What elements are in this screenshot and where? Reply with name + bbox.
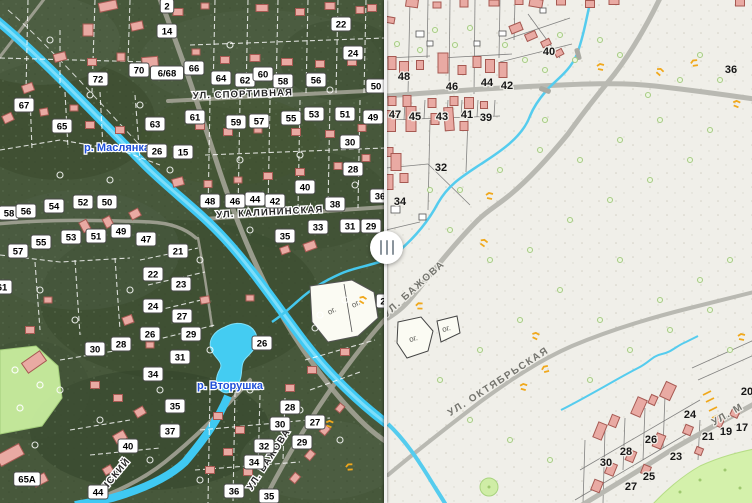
house-number-bubble: 22 xyxy=(143,267,163,281)
shed xyxy=(419,214,426,220)
building xyxy=(609,0,619,5)
shed xyxy=(540,8,546,13)
building xyxy=(200,296,210,304)
house-number-bubble: 32 xyxy=(254,439,274,453)
tree-icon xyxy=(573,58,578,63)
shed xyxy=(416,31,424,37)
building xyxy=(428,99,436,108)
building xyxy=(250,55,260,62)
house-number-bubble: 52 xyxy=(73,195,93,209)
building xyxy=(438,53,448,73)
tree-icon xyxy=(433,28,438,33)
house-number-bubble: 23 xyxy=(171,277,191,291)
building xyxy=(400,174,408,183)
house-number-bubble: 61 xyxy=(185,110,205,124)
house-number: 32 xyxy=(259,442,270,453)
building xyxy=(26,327,35,334)
house-number-bubble: 46 xyxy=(225,194,245,208)
tree-icon xyxy=(428,188,433,193)
house-number-bubble: 65 xyxy=(52,119,72,133)
building xyxy=(489,0,499,6)
tree-icon xyxy=(528,248,533,253)
house-number-bubble: 44 xyxy=(245,192,265,206)
house-number: 22 xyxy=(148,270,159,281)
building xyxy=(221,57,230,64)
house-number-bubble: 37 xyxy=(160,424,180,438)
house-number-bubble: 40 xyxy=(118,439,138,453)
tree-icon xyxy=(658,298,663,303)
house-number: 44 xyxy=(481,77,494,89)
building xyxy=(214,413,223,420)
building xyxy=(292,129,301,136)
house-number: 28 xyxy=(348,165,359,176)
building xyxy=(586,1,595,8)
shed xyxy=(427,41,433,46)
house-number: 54 xyxy=(49,202,60,213)
building xyxy=(515,0,523,5)
house-number: 67 xyxy=(19,101,30,112)
house-number: 60 xyxy=(258,70,269,81)
house-number-bubble: 35 xyxy=(259,489,279,503)
house-number: 58 xyxy=(278,77,289,88)
building xyxy=(736,0,745,6)
building xyxy=(264,173,273,180)
tree-icon xyxy=(648,178,653,183)
house-number-bubble: 35 xyxy=(275,229,295,243)
building xyxy=(88,59,97,66)
house-number-bubble: 34 xyxy=(143,367,163,381)
house-number-bubble: 56 xyxy=(16,204,36,218)
house-number: 70 xyxy=(134,66,145,77)
tree-icon xyxy=(453,43,458,48)
building xyxy=(433,2,441,8)
house-number: 36 xyxy=(725,64,737,76)
park-dot xyxy=(488,486,491,489)
building xyxy=(557,0,566,5)
house-number: 50 xyxy=(102,198,113,209)
building xyxy=(460,122,468,131)
park-dot xyxy=(724,469,727,472)
house-number: 46 xyxy=(446,81,458,93)
house-number-bubble: 56 xyxy=(306,73,326,87)
house-number-bubble: 28 xyxy=(280,400,300,414)
vector-map-panel[interactable]: УЛ. БАЖОВАУЛ. ОКТЯБРЬСКАЯУЛ. Мог.ог.4846… xyxy=(381,0,752,503)
house-number: 40 xyxy=(300,183,311,194)
tree-icon xyxy=(618,138,623,143)
tree-icon xyxy=(708,308,713,313)
building xyxy=(325,3,335,10)
basemap-texture xyxy=(385,0,752,503)
house-number: 61 xyxy=(0,283,8,294)
house-number-bubble: 29 xyxy=(292,435,312,449)
house-number: 28 xyxy=(116,340,127,351)
satellite-map-panel[interactable]: УЛ. СПОРТИВНАЯУЛ. КАЛИНИНСКАЯУЛ. БАЖОВАН… xyxy=(0,0,400,503)
house-number: 27 xyxy=(310,418,321,429)
building xyxy=(465,98,474,109)
house-number-bubble: 40 xyxy=(295,180,315,194)
house-number-bubble: 50 xyxy=(366,79,386,93)
house-number-bubble: 31 xyxy=(170,350,190,364)
house-number: 37 xyxy=(165,427,176,438)
building xyxy=(460,0,468,7)
building xyxy=(450,97,458,106)
house-number-bubble: 59 xyxy=(226,115,246,129)
house-number: 58 xyxy=(4,209,15,220)
house-number-bubble: 42 xyxy=(265,194,285,208)
house-number-bubble: 30 xyxy=(340,135,360,149)
house-number: 30 xyxy=(90,345,101,356)
house-number: 29 xyxy=(297,438,308,449)
house-number: 35 xyxy=(280,232,291,243)
building xyxy=(206,467,215,474)
house-number-bubble: 64 xyxy=(211,71,231,85)
building xyxy=(173,9,183,16)
house-number: 20 xyxy=(741,386,752,398)
house-number: 34 xyxy=(249,458,260,469)
house-number-bubble: 72 xyxy=(88,72,108,86)
house-number-bubble: 55 xyxy=(31,235,51,249)
house-number-bubble: 55 xyxy=(281,111,301,125)
house-number-bubble: 49 xyxy=(363,110,383,124)
building xyxy=(224,129,233,136)
building xyxy=(296,9,305,16)
tree-icon xyxy=(468,418,473,423)
house-number: 26 xyxy=(645,434,657,446)
house-number-bubble: 47 xyxy=(136,232,156,246)
house-number: 24 xyxy=(148,302,159,313)
tree-icon xyxy=(588,378,593,383)
house-number-bubble: 50 xyxy=(97,195,117,209)
house-number: 21 xyxy=(702,431,714,443)
building xyxy=(356,7,364,14)
house-number: 53 xyxy=(66,233,77,244)
house-number: 30 xyxy=(275,420,286,431)
building xyxy=(362,155,370,162)
building xyxy=(192,49,200,55)
building xyxy=(282,59,293,66)
house-number: 2 xyxy=(164,2,169,13)
house-number-bubble: 70 xyxy=(129,63,149,77)
house-number: 29 xyxy=(366,222,377,233)
tree-icon xyxy=(668,328,673,333)
tree-icon xyxy=(418,48,423,53)
house-number-bubble: 26 xyxy=(140,327,160,341)
park-dot xyxy=(739,487,742,490)
house-number-bubble: 36 xyxy=(224,484,244,498)
house-number: 34 xyxy=(148,370,159,381)
building xyxy=(201,3,209,9)
house-number: 17 xyxy=(736,422,748,434)
house-number: 66 xyxy=(189,64,200,75)
map-compare-view: УЛ. СПОРТИВНАЯУЛ. КАЛИНИНСКАЯУЛ. БАЖОВАН… xyxy=(0,0,752,503)
tree-icon xyxy=(646,93,651,98)
house-number-bubble: 51 xyxy=(335,107,355,121)
house-number-bubble: 33 xyxy=(308,220,328,234)
house-number: 23 xyxy=(176,280,187,291)
house-number-bubble: 30 xyxy=(270,417,290,431)
house-number: 44 xyxy=(93,488,104,499)
house-number-bubble: 2 xyxy=(160,0,174,13)
shed xyxy=(499,31,506,36)
building xyxy=(44,297,52,303)
building xyxy=(316,61,325,68)
house-number: 55 xyxy=(286,114,297,125)
tree-icon xyxy=(698,53,703,58)
house-number-bubble: 28 xyxy=(343,162,363,176)
building xyxy=(406,0,419,8)
house-number: 26 xyxy=(145,330,156,341)
house-number: 32 xyxy=(435,162,447,174)
tree-icon xyxy=(478,348,483,353)
building xyxy=(473,57,481,68)
building xyxy=(388,97,396,106)
tree-icon xyxy=(538,148,543,153)
building xyxy=(204,181,212,188)
house-number-bubble: 57 xyxy=(249,114,269,128)
building xyxy=(388,57,396,70)
building xyxy=(341,349,350,356)
tree-icon xyxy=(578,158,583,163)
tree-icon xyxy=(598,38,603,43)
house-number: 31 xyxy=(345,222,356,233)
tree-icon xyxy=(728,258,733,263)
house-number: 28 xyxy=(620,446,632,458)
house-number: 35 xyxy=(264,492,275,503)
house-number: 26 xyxy=(152,147,163,158)
house-number-bubble: 29 xyxy=(181,327,201,341)
house-number-bubble: 26 xyxy=(252,336,272,350)
drag-handle-icon xyxy=(380,240,394,255)
tree-icon xyxy=(488,258,493,263)
tree-icon xyxy=(468,26,473,31)
house-number: 30 xyxy=(345,138,356,149)
house-number: 41 xyxy=(461,109,473,121)
tree-icon xyxy=(618,258,623,263)
tree-icon xyxy=(395,42,400,47)
tree-icon xyxy=(718,78,723,83)
house-number-bubble: 24 xyxy=(343,46,363,60)
building xyxy=(83,24,93,36)
house-number: 27 xyxy=(177,312,188,323)
house-number: 53 xyxy=(309,110,320,121)
building xyxy=(86,122,95,129)
house-number: 30 xyxy=(600,457,612,469)
building xyxy=(236,427,245,434)
house-number: 65А xyxy=(18,475,36,486)
house-number: 31 xyxy=(175,353,186,364)
house-number-bubble: 57 xyxy=(8,244,28,258)
compare-slider-handle[interactable] xyxy=(370,231,403,264)
tree-icon xyxy=(543,118,548,123)
tree-icon xyxy=(598,318,603,323)
house-number: 35 xyxy=(170,402,181,413)
shed xyxy=(474,41,480,46)
house-number: 63 xyxy=(150,120,161,131)
house-number: 34 xyxy=(394,196,407,208)
house-number: 22 xyxy=(336,20,347,31)
house-number: 45 xyxy=(409,111,421,123)
house-number-bubble: 65А xyxy=(14,472,41,486)
house-number: 62 xyxy=(240,76,251,87)
house-number-bubble: 63 xyxy=(145,117,165,131)
tree-icon xyxy=(543,68,548,73)
house-number-bubble: 54 xyxy=(44,199,64,213)
house-number: 42 xyxy=(270,197,281,208)
house-number: 57 xyxy=(13,247,24,258)
house-number: 14 xyxy=(162,27,173,38)
house-number-bubble: 53 xyxy=(61,230,81,244)
house-number-bubble: 31 xyxy=(340,219,360,233)
building xyxy=(296,169,305,176)
tree-icon xyxy=(508,438,513,443)
house-number-bubble: 44 xyxy=(88,485,108,499)
house-number-bubble: 58 xyxy=(273,74,293,88)
house-number: 24 xyxy=(684,409,697,421)
house-number-bubble: 62 xyxy=(235,73,255,87)
building xyxy=(146,342,154,348)
tree-icon xyxy=(503,43,508,48)
house-number: 33 xyxy=(313,223,324,234)
building xyxy=(256,5,268,12)
river-label: р. Вторушка xyxy=(197,380,264,392)
house-number-bubble: 66 xyxy=(184,61,204,75)
house-number: 64 xyxy=(216,74,227,85)
tree-icon xyxy=(678,78,683,83)
house-number-bubble: 35 xyxy=(165,399,185,413)
building xyxy=(358,125,366,132)
house-number-bubble: 67 xyxy=(14,98,34,112)
house-number-bubble: 48 xyxy=(200,194,220,208)
house-number-bubble: 28 xyxy=(111,337,131,351)
park-dot xyxy=(679,491,682,494)
house-number: 40 xyxy=(123,442,134,453)
house-number: 51 xyxy=(340,110,351,121)
house-number-bubble: 49 xyxy=(111,224,131,238)
building xyxy=(286,385,295,392)
tree-icon xyxy=(523,58,528,63)
house-number: 42 xyxy=(501,80,513,92)
tree-icon xyxy=(448,228,453,233)
house-number: 47 xyxy=(389,109,401,121)
house-number: 36 xyxy=(229,487,240,498)
building xyxy=(308,367,317,374)
building xyxy=(481,102,488,109)
house-number-bubble: 27 xyxy=(172,309,192,323)
house-number: 43 xyxy=(436,111,448,123)
house-number: 52 xyxy=(78,198,89,209)
house-number: 56 xyxy=(21,207,32,218)
house-number-bubble: 61 xyxy=(0,280,12,294)
house-number: 24 xyxy=(348,49,359,60)
building xyxy=(326,131,335,138)
building xyxy=(39,108,48,116)
house-number: 56 xyxy=(311,76,322,87)
house-number-bubble: 24 xyxy=(143,299,163,313)
house-number-bubble: 27 xyxy=(305,415,325,429)
building xyxy=(244,469,253,476)
building xyxy=(117,53,125,61)
tree-icon xyxy=(438,378,443,383)
house-number-bubble: 60 xyxy=(253,67,273,81)
building xyxy=(334,163,342,170)
building xyxy=(91,382,100,389)
house-number-bubble: 26 xyxy=(147,144,167,158)
house-number: 61 xyxy=(190,113,201,124)
house-number: 39 xyxy=(480,112,492,124)
building xyxy=(116,127,125,134)
house-number-bubble: 21 xyxy=(168,244,188,258)
tree-icon xyxy=(498,168,503,173)
house-number: 19 xyxy=(720,426,732,438)
house-number: 27 xyxy=(625,481,637,493)
house-number: 48 xyxy=(205,197,216,208)
house-number: 25 xyxy=(643,471,655,483)
building xyxy=(70,105,78,111)
tree-icon xyxy=(548,458,553,463)
tree-icon xyxy=(708,128,713,133)
tree-icon xyxy=(628,348,633,353)
building xyxy=(458,66,466,75)
house-number: 38 xyxy=(330,200,341,211)
house-number-bubble: 22 xyxy=(331,17,351,31)
house-number-bubble: 34 xyxy=(244,455,264,469)
house-number: 44 xyxy=(250,195,261,206)
house-number: 59 xyxy=(231,118,242,129)
house-number: 50 xyxy=(371,82,382,93)
house-number-bubble: 6/68 xyxy=(151,66,184,80)
house-number: 49 xyxy=(368,113,379,124)
building xyxy=(486,60,495,73)
building xyxy=(114,395,123,402)
house-number-bubble: 29 xyxy=(361,219,381,233)
building xyxy=(499,63,507,78)
house-number: 29 xyxy=(186,330,197,341)
house-number-bubble: 51 xyxy=(86,229,106,243)
building xyxy=(391,154,401,171)
park-dot xyxy=(699,479,702,482)
tree-icon xyxy=(558,33,563,38)
house-number-bubble: 38 xyxy=(325,197,345,211)
house-number: 23 xyxy=(670,451,682,463)
tree-icon xyxy=(518,318,523,323)
building xyxy=(368,5,377,12)
house-number: 47 xyxy=(141,235,152,246)
tree-icon xyxy=(618,53,623,58)
house-number: 21 xyxy=(173,247,184,258)
house-number: 57 xyxy=(254,117,265,128)
building xyxy=(246,295,254,301)
house-number: 46 xyxy=(230,197,241,208)
house-number: 15 xyxy=(178,148,189,159)
house-number-bubble: 15 xyxy=(173,145,193,159)
building xyxy=(224,449,233,456)
tree-icon xyxy=(558,288,563,293)
river-label: р. Маслянка xyxy=(84,142,151,154)
house-number: 49 xyxy=(116,227,127,238)
house-number: 72 xyxy=(93,75,104,86)
house-number-bubble: 53 xyxy=(304,107,324,121)
house-number: 48 xyxy=(398,71,410,83)
tree-icon xyxy=(568,218,573,223)
tree-icon xyxy=(728,348,733,353)
building xyxy=(417,61,424,70)
building xyxy=(234,177,242,183)
tree-icon xyxy=(698,278,703,283)
tree-icon xyxy=(688,158,693,163)
house-number: 26 xyxy=(257,339,268,350)
house-number-bubble: 14 xyxy=(157,24,177,38)
house-number: 51 xyxy=(91,232,102,243)
